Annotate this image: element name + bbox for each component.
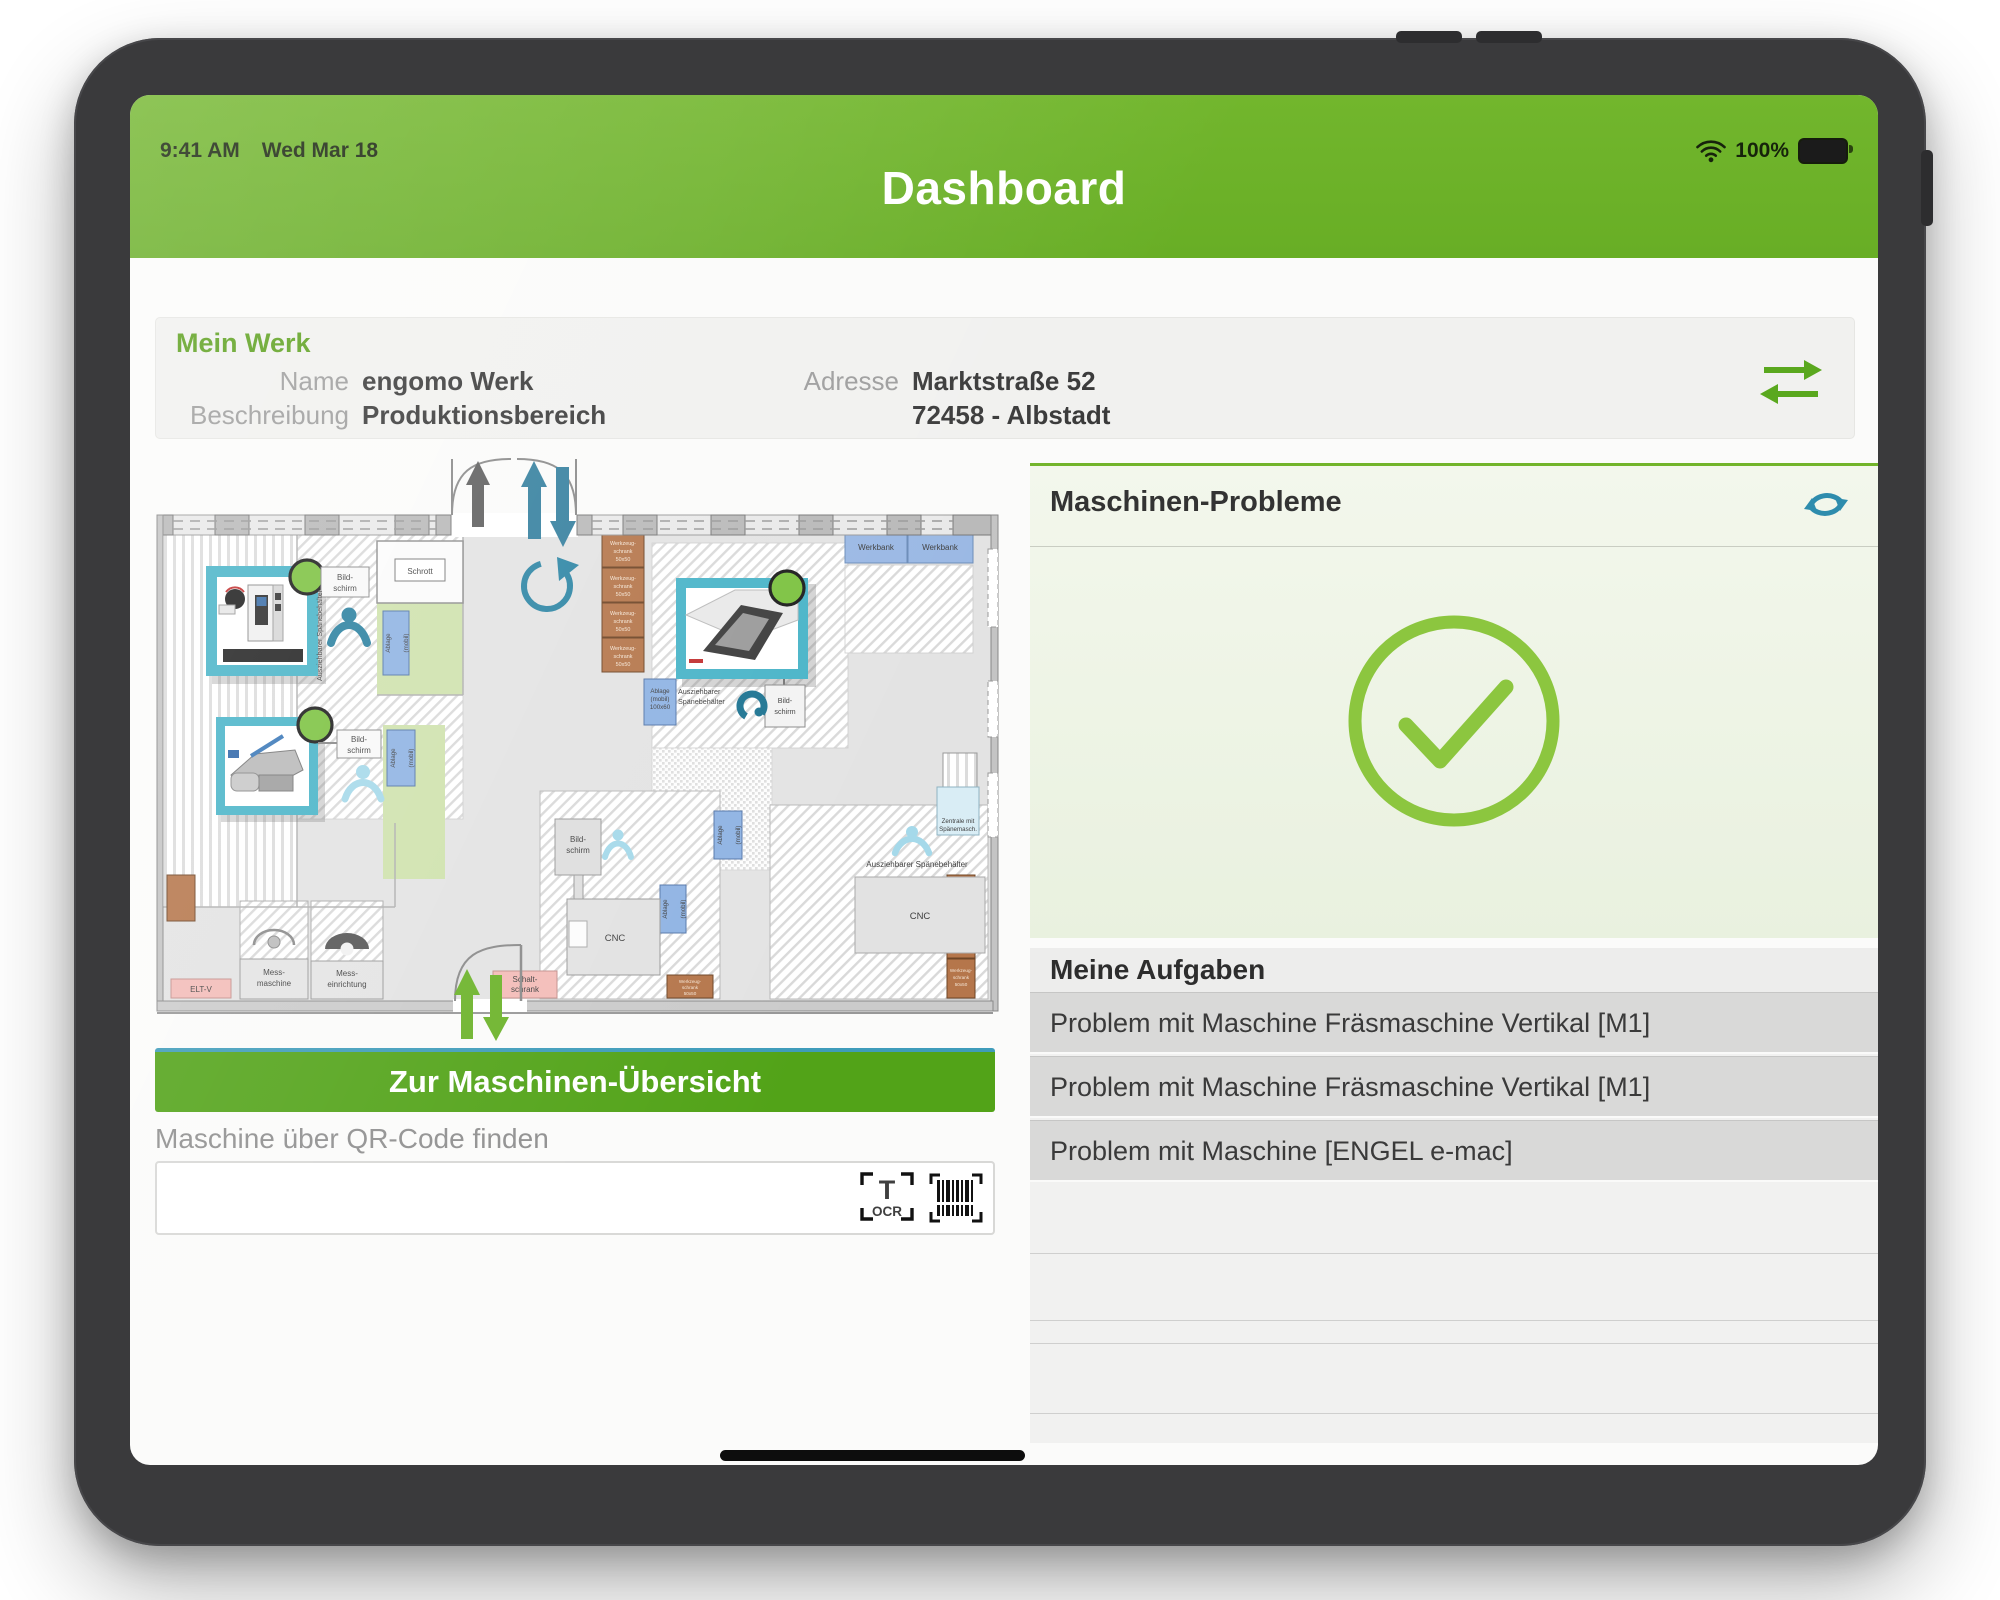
name-label: Name <box>176 364 349 398</box>
machine-2-status-marker[interactable] <box>298 708 332 742</box>
battery-percent: 100% <box>1735 139 1789 163</box>
svg-text:Ablage: Ablage <box>717 825 724 845</box>
svg-text:Ablage: Ablage <box>390 748 397 768</box>
app-header: 9:41 AM Wed Mar 18 100% Dashboard <box>130 95 1878 258</box>
svg-text:(mobil): (mobil) <box>403 634 410 653</box>
beschreibung-value: Produktionsbereich <box>362 398 606 432</box>
svg-text:schrank: schrank <box>614 654 633 660</box>
divider <box>1030 546 1878 547</box>
svg-text:T: T <box>879 1175 896 1205</box>
svg-text:Spänebehälter: Spänebehälter <box>678 697 725 706</box>
svg-text:50x50: 50x50 <box>616 662 631 668</box>
svg-text:Werkbank: Werkbank <box>858 543 895 552</box>
svg-text:Werkzeug-: Werkzeug- <box>610 576 636 582</box>
qr-search-label: Maschine über QR-Code finden <box>155 1123 549 1155</box>
werk-name-group: Name engomo Werk Beschreibung Produktion… <box>176 364 606 432</box>
beschreibung-label: Beschreibung <box>176 398 349 432</box>
volume-up-button <box>1396 31 1462 43</box>
svg-text:50x50: 50x50 <box>616 592 631 598</box>
machine-1-status-marker[interactable] <box>290 560 324 594</box>
barcode-scan-icon[interactable] <box>927 1172 985 1224</box>
factory-floor-plan[interactable]: Schrott Ablage (mobil) Ablage (mobil) Ab… <box>155 453 1000 1043</box>
svg-text:schrank: schrank <box>953 975 970 980</box>
svg-text:(mobil): (mobil) <box>680 900 687 919</box>
adresse-label: Adresse <box>726 364 899 398</box>
werkbank-boxes: Werkbank Werkbank <box>845 531 973 563</box>
power-button <box>1921 150 1933 226</box>
svg-text:schrank: schrank <box>614 549 633 555</box>
home-indicator[interactable] <box>720 1450 1025 1461</box>
refresh-icon[interactable] <box>1798 476 1854 532</box>
svg-text:schrank: schrank <box>614 584 633 590</box>
svg-text:Bild-: Bild- <box>351 735 367 744</box>
status-time: 9:41 AM <box>160 139 240 163</box>
svg-text:(mobil): (mobil) <box>735 826 742 845</box>
svg-text:50x50: 50x50 <box>616 557 631 563</box>
status-date: Wed Mar 18 <box>262 139 378 163</box>
svg-text:(mobil): (mobil) <box>408 749 415 768</box>
schrott-label: Schrott <box>407 567 433 576</box>
werk-adresse-group: Adresse Marktstraße 52 72458 - Albstadt <box>726 364 1110 432</box>
screen: 9:41 AM Wed Mar 18 100% Dashboard <box>130 95 1878 1465</box>
room-schrott: Schrott <box>377 541 463 603</box>
empty-row-divider <box>1030 1343 1878 1344</box>
swap-werk-icon[interactable] <box>1756 354 1826 410</box>
svg-text:Mess-: Mess- <box>336 969 358 978</box>
ocr-scan-icon[interactable]: T OCR <box>857 1168 917 1228</box>
svg-text:Spänemasch.: Spänemasch. <box>939 826 977 833</box>
svg-text:Bild-: Bild- <box>570 835 586 844</box>
svg-text:Werkzeug-: Werkzeug- <box>610 646 636 652</box>
svg-text:Werkzeug-: Werkzeug- <box>610 611 636 617</box>
elt-v-box: ELT-V <box>171 979 231 998</box>
svg-text:Bild-: Bild- <box>778 696 793 705</box>
svg-text:OCR: OCR <box>872 1204 902 1219</box>
tablet-frame: 9:41 AM Wed Mar 18 100% Dashboard <box>74 38 1926 1546</box>
svg-text:Mess-: Mess- <box>263 968 285 977</box>
task-row[interactable]: Problem mit Maschine [ENGEL e-mac] <box>1030 1120 1878 1182</box>
empty-row-divider <box>1030 1253 1878 1254</box>
svg-text:Werkzeug-: Werkzeug- <box>679 979 702 984</box>
svg-text:Schalt-: Schalt- <box>513 975 538 984</box>
tasks-title-row: Meine Aufgaben <box>1030 948 1878 992</box>
svg-text:schrank: schrank <box>511 985 540 994</box>
machine-3-status-marker[interactable] <box>770 571 804 605</box>
machine-problems-title: Maschinen-Probleme <box>1050 486 1342 519</box>
svg-text:Werkbank: Werkbank <box>922 543 959 552</box>
svg-text:Ausziehbarer: Ausziehbarer <box>678 687 721 696</box>
svg-text:Zentrale mit: Zentrale mit <box>942 818 975 825</box>
mein-werk-title: Mein Werk <box>176 328 311 359</box>
svg-text:Werkzeug-: Werkzeug- <box>950 968 973 973</box>
machine-overview-button[interactable]: Zur Maschinen-Übersicht <box>155 1048 995 1112</box>
svg-text:Bild-: Bild- <box>337 573 353 582</box>
machine-1[interactable] <box>206 560 326 684</box>
tasks-title: Meine Aufgaben <box>1050 954 1265 986</box>
my-tasks-panel: Meine Aufgaben Problem mit Maschine Fräs… <box>1030 948 1878 1443</box>
machine-3[interactable] <box>676 571 816 687</box>
name-value: engomo Werk <box>362 364 533 398</box>
werkzeugschrank-stack: Werkzeug- schrank 50x50 Werkzeug- schran… <box>602 533 644 672</box>
svg-text:(mobil): (mobil) <box>651 696 670 703</box>
svg-text:Ablage: Ablage <box>385 633 392 653</box>
svg-text:CNC: CNC <box>605 933 626 944</box>
page-title: Dashboard <box>130 161 1878 215</box>
svg-text:50x50: 50x50 <box>955 982 968 987</box>
adresse-street: Marktstraße 52 <box>912 364 1096 398</box>
empty-row-divider <box>1030 1413 1878 1414</box>
svg-text:schrank: schrank <box>614 619 633 625</box>
svg-text:50x50: 50x50 <box>616 627 631 633</box>
svg-text:Ablage: Ablage <box>662 899 669 919</box>
no-problems-check-icon <box>1339 606 1569 836</box>
schaltschrank-box: Schalt- schrank <box>493 971 557 998</box>
svg-text:Ausziehbarer Spänebehälter: Ausziehbarer Spänebehälter <box>866 860 968 869</box>
zentrale-box: Zentrale mit Spänemasch. <box>937 753 979 835</box>
svg-text:maschine: maschine <box>257 979 292 988</box>
svg-text:Ablage: Ablage <box>650 688 670 695</box>
empty-row-divider <box>1030 1320 1878 1321</box>
svg-text:Ausziehbarer Spänebehälter: Ausziehbarer Spänebehälter <box>315 589 324 681</box>
svg-text:50x50: 50x50 <box>684 991 697 996</box>
adresse-city: 72458 - Albstadt <box>912 398 1110 432</box>
svg-text:einrichtung: einrichtung <box>327 980 366 989</box>
wifi-icon <box>1696 140 1726 163</box>
svg-text:schirm: schirm <box>347 746 371 755</box>
svg-text:CNC: CNC <box>910 911 931 922</box>
svg-text:schirm: schirm <box>333 584 357 593</box>
svg-text:100x60: 100x60 <box>650 704 671 711</box>
task-row[interactable]: Problem mit Maschine Fräsmaschine Vertik… <box>1030 992 1878 1054</box>
task-row[interactable]: Problem mit Maschine Fräsmaschine Vertik… <box>1030 1056 1878 1118</box>
svg-text:Werkzeug-: Werkzeug- <box>610 541 636 547</box>
machine-2[interactable] <box>216 708 332 822</box>
mein-werk-card: Mein Werk Name engomo Werk Beschreibung … <box>155 317 1855 439</box>
svg-text:schirm: schirm <box>774 707 795 716</box>
svg-text:schrank: schrank <box>682 985 699 990</box>
svg-text:schirm: schirm <box>566 846 590 855</box>
machine-problems-panel: Maschinen-Probleme <box>1030 463 1878 938</box>
volume-down-button <box>1476 31 1542 43</box>
adresse-label-spacer <box>726 398 899 432</box>
svg-text:ELT-V: ELT-V <box>190 985 212 994</box>
